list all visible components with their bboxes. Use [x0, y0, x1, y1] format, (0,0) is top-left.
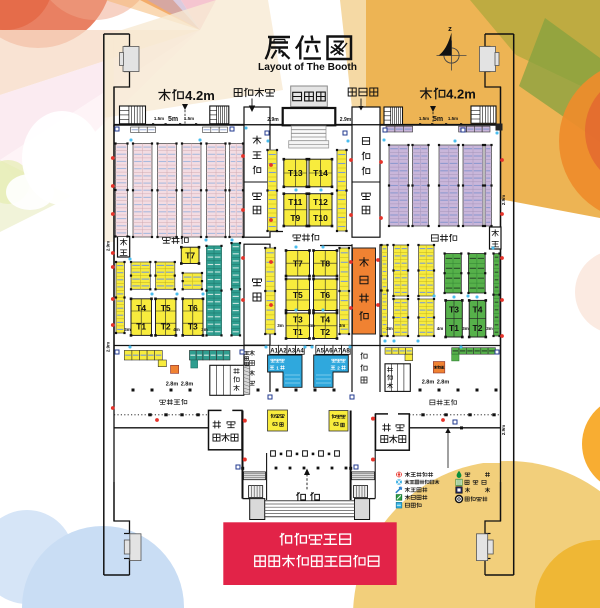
svg-text:A1: A1	[270, 348, 278, 354]
svg-text:1.5m: 1.5m	[184, 116, 194, 121]
svg-text:3m: 3m	[386, 326, 393, 331]
svg-text:1.5m: 1.5m	[154, 116, 164, 121]
svg-text:2.9m: 2.9m	[106, 241, 111, 251]
svg-text:2.8m: 2.8m	[422, 380, 435, 386]
svg-text:T7: T7	[185, 250, 195, 260]
svg-text:T2: T2	[473, 323, 483, 333]
svg-text:3m: 3m	[462, 326, 469, 331]
svg-text:4.2m: 4.2m	[185, 88, 215, 103]
svg-text:2.8m: 2.8m	[181, 382, 194, 388]
svg-text:T9: T9	[290, 213, 300, 223]
svg-text:3m: 3m	[124, 327, 131, 332]
svg-text:A3: A3	[287, 348, 295, 354]
svg-text:T14: T14	[313, 168, 328, 178]
svg-text:T8: T8	[320, 258, 330, 268]
svg-text:T4: T4	[136, 303, 146, 313]
svg-text:5m: 5m	[168, 116, 178, 123]
svg-text:T3: T3	[293, 314, 303, 324]
svg-text:4m: 4m	[173, 327, 180, 332]
svg-text:3m: 3m	[201, 327, 208, 332]
svg-text:4.2m: 4.2m	[446, 87, 476, 102]
svg-text:2.9m: 2.9m	[501, 425, 506, 435]
svg-text:T12: T12	[313, 197, 328, 207]
svg-text:T7: T7	[293, 258, 303, 268]
svg-text:T2: T2	[320, 327, 330, 337]
svg-text:A6: A6	[325, 348, 333, 354]
svg-text:T10: T10	[313, 213, 328, 223]
svg-text:3m: 3m	[486, 326, 493, 331]
svg-text:4m: 4m	[437, 326, 444, 331]
svg-text:2.9m: 2.9m	[501, 195, 506, 205]
svg-text:3m: 3m	[308, 323, 315, 328]
svg-text:z: z	[448, 24, 452, 33]
svg-text:T13: T13	[288, 168, 303, 178]
svg-text:3m: 3m	[277, 323, 284, 328]
svg-text:A7: A7	[333, 348, 341, 354]
svg-text:T6: T6	[188, 303, 198, 313]
svg-text:T11: T11	[288, 197, 302, 207]
svg-text:T5: T5	[293, 290, 303, 300]
svg-text:T3: T3	[449, 305, 459, 315]
svg-text:1.5m: 1.5m	[419, 116, 429, 121]
svg-text:1.5m: 1.5m	[448, 116, 458, 121]
svg-text:2.8m: 2.8m	[437, 380, 450, 386]
svg-text:T1: T1	[293, 327, 303, 337]
svg-text:A5: A5	[316, 348, 324, 354]
svg-text:63: 63	[333, 422, 339, 428]
svg-text:T2: T2	[161, 321, 171, 331]
svg-text:2.9m: 2.9m	[267, 117, 279, 123]
svg-text:T1: T1	[449, 323, 459, 333]
svg-text:A4: A4	[296, 348, 304, 354]
svg-text:T4: T4	[320, 314, 330, 324]
svg-text:T6: T6	[320, 290, 330, 300]
svg-text:T3: T3	[188, 321, 198, 331]
svg-text:T1: T1	[136, 321, 146, 331]
svg-text:2.8m: 2.8m	[166, 382, 179, 388]
svg-text:Layout of The Booth: Layout of The Booth	[258, 62, 357, 73]
svg-text:5m: 5m	[433, 116, 443, 123]
svg-text:63: 63	[272, 422, 278, 428]
svg-text:3m: 3m	[339, 323, 346, 328]
svg-text:T5: T5	[161, 303, 171, 313]
svg-text:2.9m: 2.9m	[106, 342, 111, 352]
svg-text:A2: A2	[279, 348, 287, 354]
svg-text:T4: T4	[473, 305, 483, 315]
svg-text:2.9m: 2.9m	[340, 117, 352, 123]
svg-text:A8: A8	[342, 348, 350, 354]
